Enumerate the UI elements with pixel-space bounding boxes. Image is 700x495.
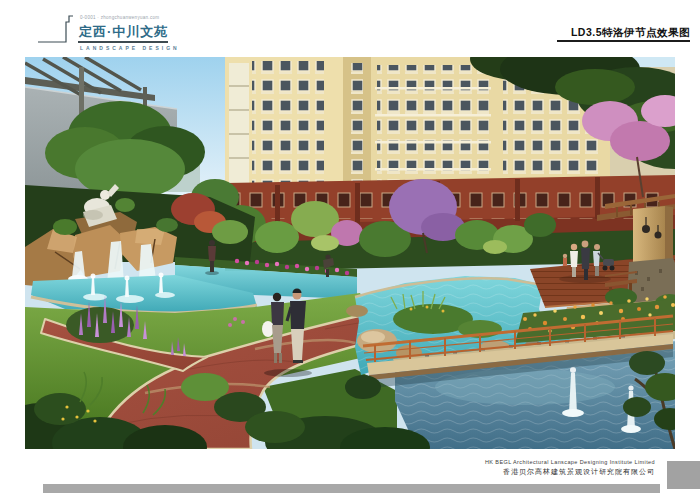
project-title: 定西·中川文苑 (79, 23, 168, 41)
lantern (642, 225, 650, 233)
lantern (655, 232, 662, 239)
presentation-board: 0-0001 · zhongchuanwenyuan.com 定西·中川文苑 L… (0, 0, 700, 495)
rendering-image (25, 57, 675, 449)
white-bag (262, 321, 274, 337)
title-underline (78, 41, 168, 43)
bottom-bar (43, 484, 660, 493)
stroller (603, 259, 614, 266)
company-name-en: HK BEGL Architectural Lanscape Designing… (485, 459, 655, 465)
logo-mark (38, 12, 78, 43)
drawing-label-underline (557, 40, 690, 42)
drawing-label: LD3.5特洛伊节点效果图 (571, 26, 690, 40)
brand-subtitle: LANDSCAPE DESIGN (80, 45, 180, 51)
brand-tagline: 0-0001 · zhongchuanwenyuan.com (80, 15, 159, 20)
company-name-zh: 香港贝尔高林建筑景观设计研究院有限公司 (503, 467, 655, 477)
corner-block (667, 461, 700, 489)
